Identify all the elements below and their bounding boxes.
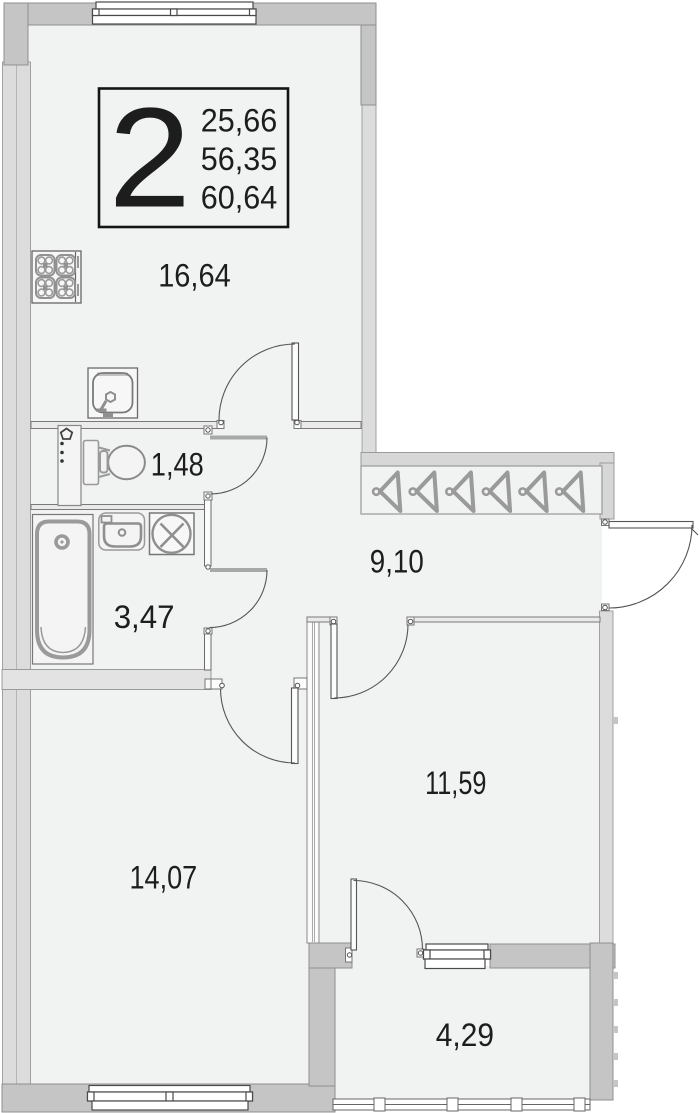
svg-text:25,66: 25,66 xyxy=(201,103,277,139)
svg-text:1,48: 1,48 xyxy=(151,447,204,483)
svg-text:4,29: 4,29 xyxy=(436,1017,494,1053)
svg-text:16,64: 16,64 xyxy=(158,258,231,294)
svg-text:9,10: 9,10 xyxy=(370,544,424,580)
svg-text:3,47: 3,47 xyxy=(114,599,175,635)
svg-text:2: 2 xyxy=(109,79,192,238)
svg-text:60,64: 60,64 xyxy=(201,180,277,216)
svg-text:56,35: 56,35 xyxy=(201,141,277,177)
svg-text:11,59: 11,59 xyxy=(425,765,486,801)
svg-text:14,07: 14,07 xyxy=(130,860,198,896)
